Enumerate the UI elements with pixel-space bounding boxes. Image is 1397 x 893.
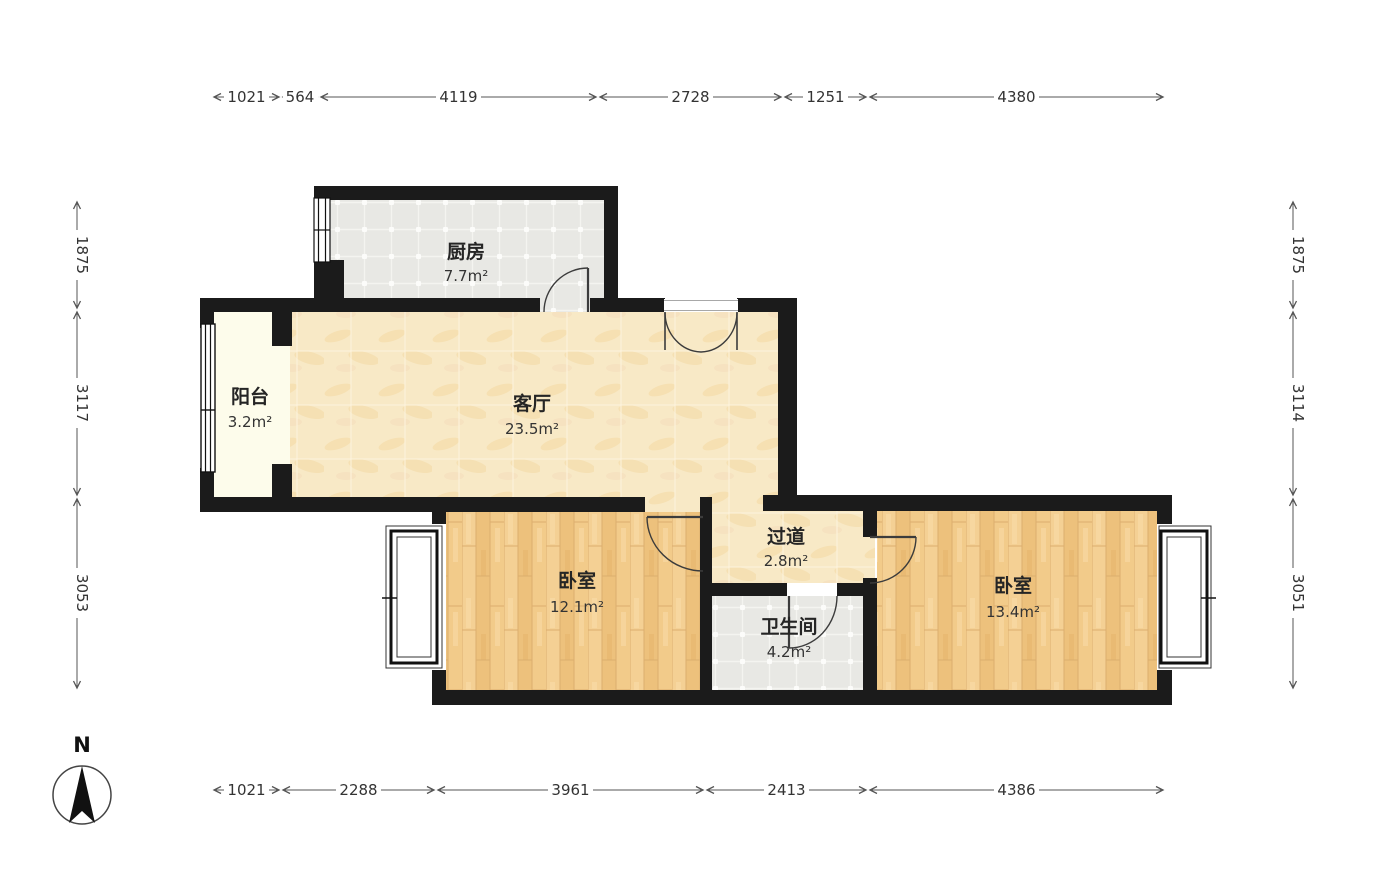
- room-area-hallway: 2.8m²: [764, 552, 808, 570]
- dim-top-3: 4119: [439, 88, 477, 106]
- room-area-bathroom: 4.2m²: [767, 643, 811, 661]
- floor-plan-canvas: 厨房 7.7m² 阳台 3.2m² 客厅 23.5m² 过道 2.8m² 卧室 …: [0, 0, 1397, 893]
- dim-top-4: 2728: [671, 88, 709, 106]
- dim-bottom-4: 2413: [767, 781, 805, 799]
- room-label-bedroom-left: 卧室: [558, 569, 596, 592]
- room-area-bedroom-left: 12.1m²: [550, 598, 604, 616]
- room-label-living-room: 客厅: [513, 392, 551, 415]
- room-area-kitchen: 7.7m²: [444, 267, 488, 285]
- room-label-balcony: 阳台: [231, 385, 269, 408]
- bedroom-right-floor: [877, 511, 1157, 690]
- room-area-living-room: 23.5m²: [505, 420, 559, 438]
- room-label-bedroom-right: 卧室: [994, 574, 1032, 597]
- compass-north-label: N: [73, 733, 91, 757]
- dim-bottom-5: 4386: [997, 781, 1035, 799]
- dim-top-5: 1251: [806, 88, 844, 106]
- floor-plan-drawing: 厨房 7.7m² 阳台 3.2m² 客厅 23.5m² 过道 2.8m² 卧室 …: [0, 0, 1397, 893]
- dim-right-1: 1875: [1289, 236, 1307, 274]
- dim-left-2: 3117: [73, 384, 91, 422]
- dim-left-3: 3053: [73, 574, 91, 612]
- dim-right-3: 3051: [1289, 574, 1307, 612]
- dim-left-1: 1875: [73, 236, 91, 274]
- bedroom-right-bay-window: [1157, 524, 1216, 670]
- dim-bottom-1: 1021: [227, 781, 265, 799]
- compass: N: [53, 733, 111, 824]
- dim-top-6: 4380: [997, 88, 1035, 106]
- room-area-bedroom-right: 13.4m²: [986, 603, 1040, 621]
- kitchen-window: [314, 198, 330, 262]
- room-label-bathroom: 卫生间: [760, 615, 817, 638]
- room-area-balcony: 3.2m²: [228, 413, 272, 431]
- dim-bottom-3: 3961: [551, 781, 589, 799]
- room-label-hallway: 过道: [767, 525, 805, 548]
- dim-top-1: 1021: [227, 88, 265, 106]
- dim-right-2: 3114: [1289, 384, 1307, 422]
- bedroom-left-bay-window: [382, 524, 446, 670]
- dim-top-2: 564: [286, 88, 315, 106]
- dim-bottom-2: 2288: [339, 781, 377, 799]
- balcony-window: [201, 324, 215, 472]
- room-label-kitchen: 厨房: [447, 240, 485, 263]
